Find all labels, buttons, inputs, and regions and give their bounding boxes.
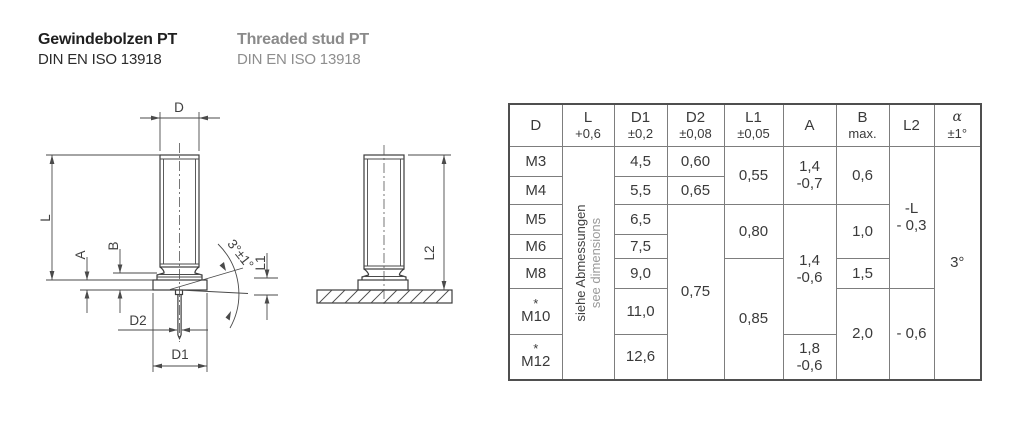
cell-d1-m10: 11,0 [614,288,667,334]
footnote-star: * [510,293,562,308]
technical-drawing: D L A B 3°±1° L [30,85,500,405]
dim-label-l2: L2 [422,245,437,260]
cell-b-m5-m6: 1,0 [836,204,889,258]
cell-a-m5-m10: 1,4 -0,6 [783,204,836,334]
cell-l2-m3-m8: -L - 0,3 [889,146,934,288]
title-english: Threaded stud PT DIN EN ISO 13918 [237,30,369,70]
dim-label-l1: L1 [253,255,268,270]
cell-l-note: siehe Abmessungen see dimensions [562,146,614,380]
col-header-l1: L1±0,05 [724,104,783,146]
col-header-a: A [783,104,836,146]
col-header-alpha: α±1° [934,104,981,146]
cell-size-m4: M4 [509,176,562,204]
col-header-d1: D1±0,2 [614,104,667,146]
dim-l2: L2 [408,155,451,290]
cell-a-m3-m4: 1,4 -0,7 [783,146,836,204]
front-view-stud [153,143,207,342]
dim-d1: D1 [153,293,207,372]
dimension-table: D L+0,6 D1±0,2 D2±0,08 L1±0,05 A Bmax. L… [508,103,982,381]
cell-size-m12: * M12 [509,334,562,380]
cell-d2-m3: 0,60 [667,146,724,176]
dim-label-l: L [38,214,53,222]
cell-a-m12: 1,8 -0,6 [783,334,836,380]
footnote-star: * [510,338,562,353]
title-german-name: Gewindebolzen PT [38,30,177,50]
cell-d2-m5-m12: 0,75 [667,204,724,380]
cell-d2-m4: 0,65 [667,176,724,204]
dim-label-b: B [106,241,121,250]
cell-size-m6: M6 [509,234,562,258]
title-english-name: Threaded stud PT [237,30,369,50]
title-german-standard: DIN EN ISO 13918 [38,50,177,70]
cell-d1-m6: 7,5 [614,234,667,258]
table-row-m3: M3 siehe Abmessungen see dimensions 4,5 … [509,146,981,176]
col-header-l2: L2 [889,104,934,146]
cell-b-m10-m12: 2,0 [836,288,889,380]
cell-size-m8: M8 [509,258,562,288]
dim-label-d1: D1 [171,347,188,362]
dim-l1: L1 [253,253,278,320]
cell-size-m3: M3 [509,146,562,176]
dim-label-d2: D2 [129,313,146,328]
col-header-b: Bmax. [836,104,889,146]
col-header-d2: D2±0,08 [667,104,724,146]
cell-l2-m10-m12: - 0,6 [889,288,934,380]
cell-size-m5: M5 [509,204,562,234]
dim-label-angle: 3°±1° [224,237,256,272]
dim-label-d: D [174,100,184,115]
cell-b-m8: 1,5 [836,258,889,288]
col-header-l: L+0,6 [562,104,614,146]
dim-l: L [38,155,160,280]
dim-label-a: A [73,250,88,259]
cell-d1-m4: 5,5 [614,176,667,204]
cell-b-m3-m4: 0,6 [836,146,889,204]
cell-size-m10: * M10 [509,288,562,334]
cell-l1-m3-m4: 0,55 [724,146,783,204]
dim-d2: D2 [118,313,208,332]
dim-d: D [140,100,220,151]
see-dimensions-note: siehe Abmessungen see dimensions [573,153,603,373]
table-header-row: D L+0,6 D1±0,2 D2±0,08 L1±0,05 A Bmax. L… [509,104,981,146]
cell-d1-m5: 6,5 [614,204,667,234]
cell-d1-m12: 12,6 [614,334,667,380]
col-header-d: D [509,104,562,146]
cell-alpha: 3° [934,146,981,380]
cell-d1-m8: 9,0 [614,258,667,288]
side-view-stud [317,145,452,307]
cell-d1-m3: 4,5 [614,146,667,176]
title-english-standard: DIN EN ISO 13918 [237,50,369,70]
dim-b: B [106,241,157,313]
title-german: Gewindebolzen PT DIN EN ISO 13918 [38,30,177,70]
dim-a: A [73,250,153,313]
cell-l1-m8-m12: 0,85 [724,258,783,380]
cell-l1-m5-m6: 0,80 [724,204,783,258]
